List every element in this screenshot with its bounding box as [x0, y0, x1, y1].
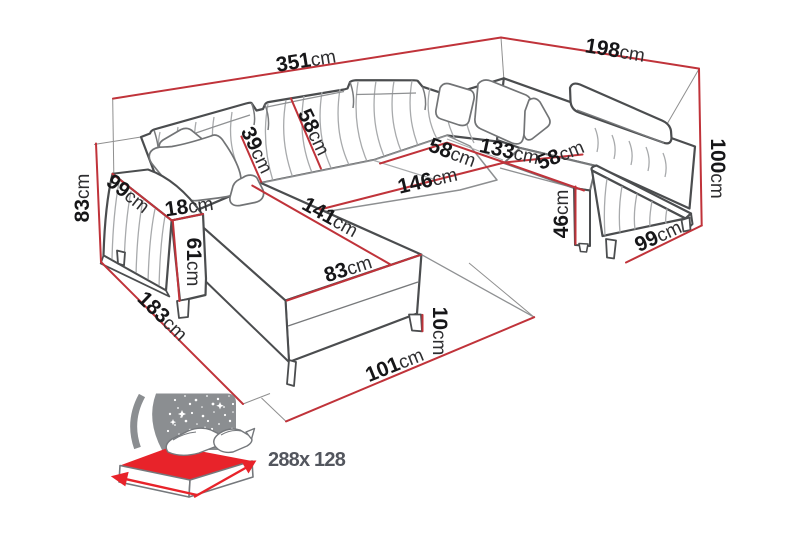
svg-text:288x 128: 288x 128: [268, 449, 346, 471]
svg-text:100cm: 100cm: [706, 138, 729, 198]
svg-text:61cm: 61cm: [182, 238, 205, 287]
svg-text:83cm: 83cm: [71, 174, 94, 223]
svg-text:46cm: 46cm: [550, 190, 573, 239]
svg-text:10cm: 10cm: [428, 307, 451, 356]
